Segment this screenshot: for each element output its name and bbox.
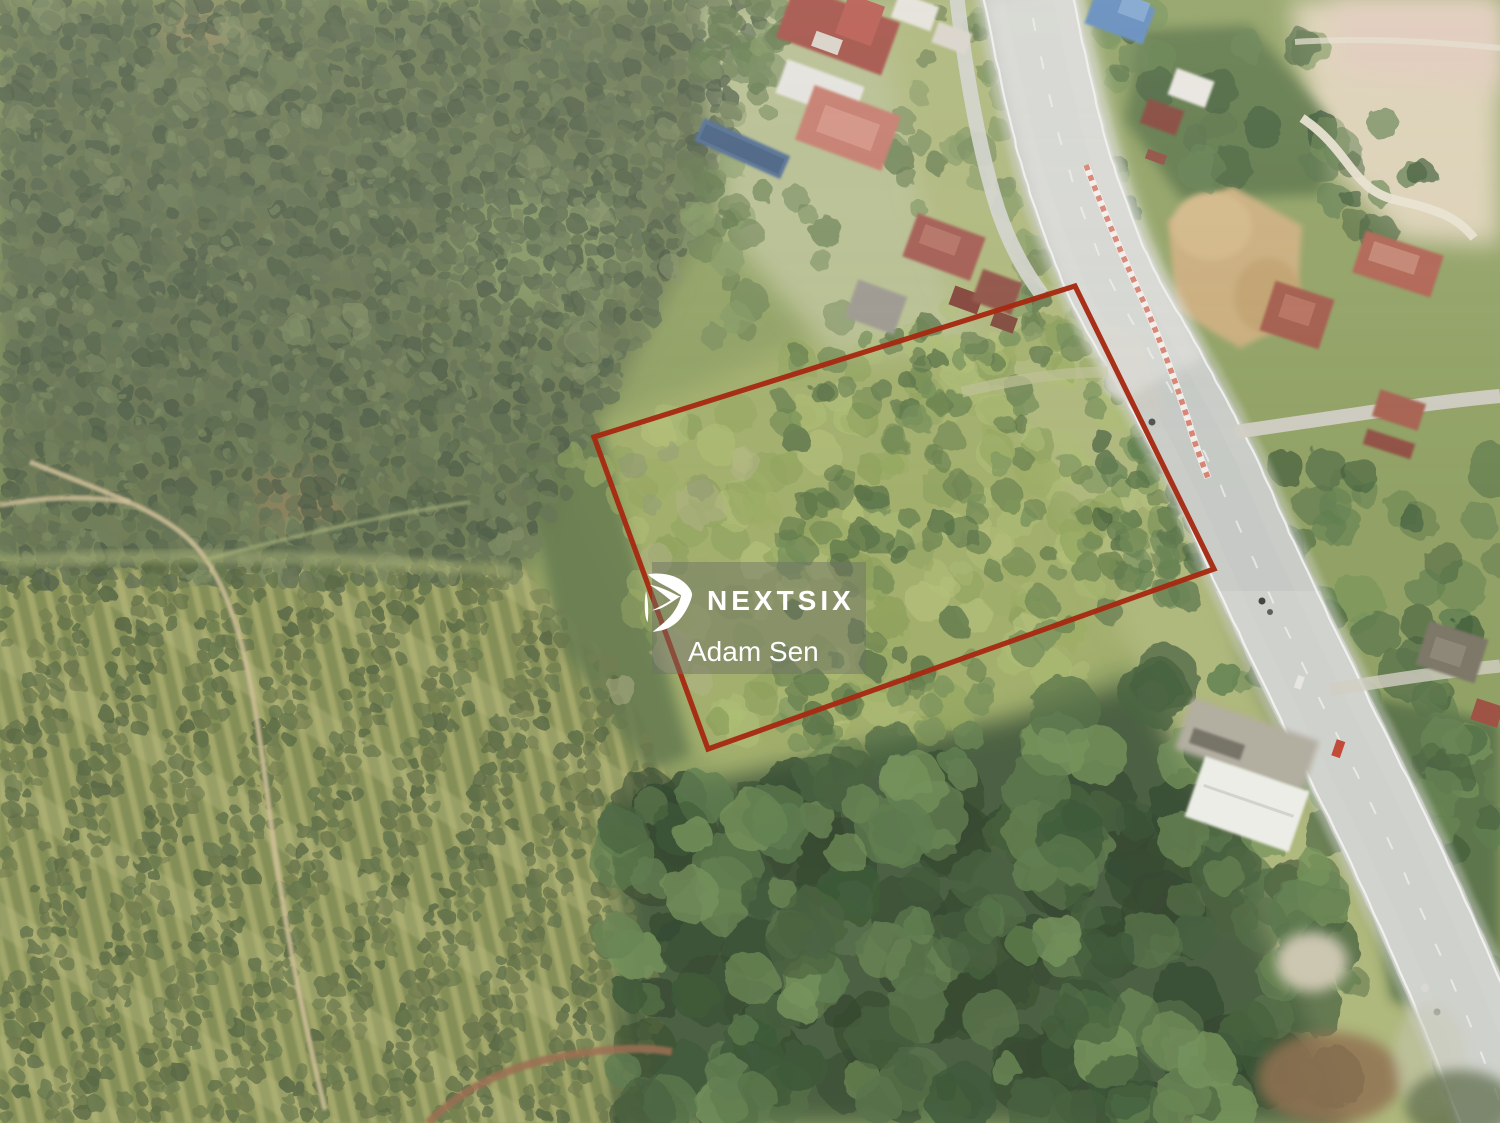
svg-text:NEXTSIX: NEXTSIX xyxy=(707,585,855,616)
svg-text:Adam Sen: Adam Sen xyxy=(688,636,819,667)
